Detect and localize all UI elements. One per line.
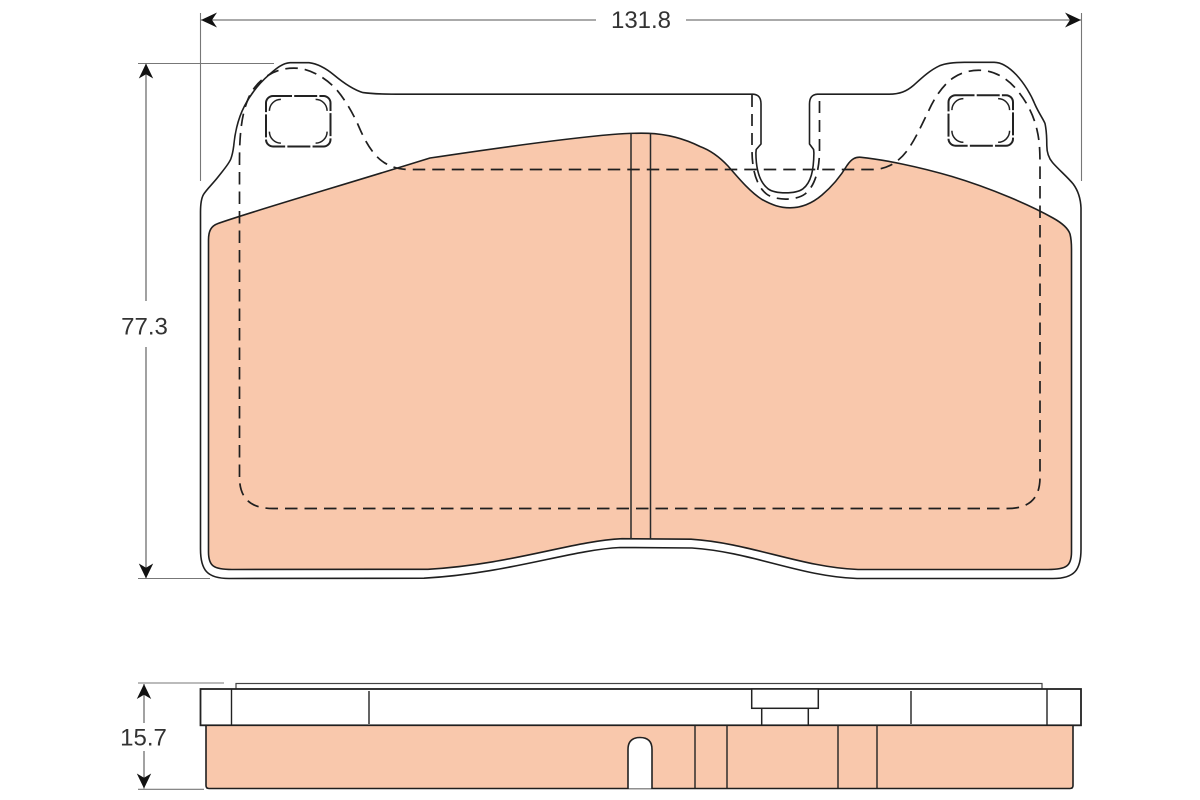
svg-text:77.3: 77.3 bbox=[121, 314, 168, 341]
svg-text:15.7: 15.7 bbox=[120, 725, 167, 752]
svg-text:131.8: 131.8 bbox=[611, 7, 671, 34]
